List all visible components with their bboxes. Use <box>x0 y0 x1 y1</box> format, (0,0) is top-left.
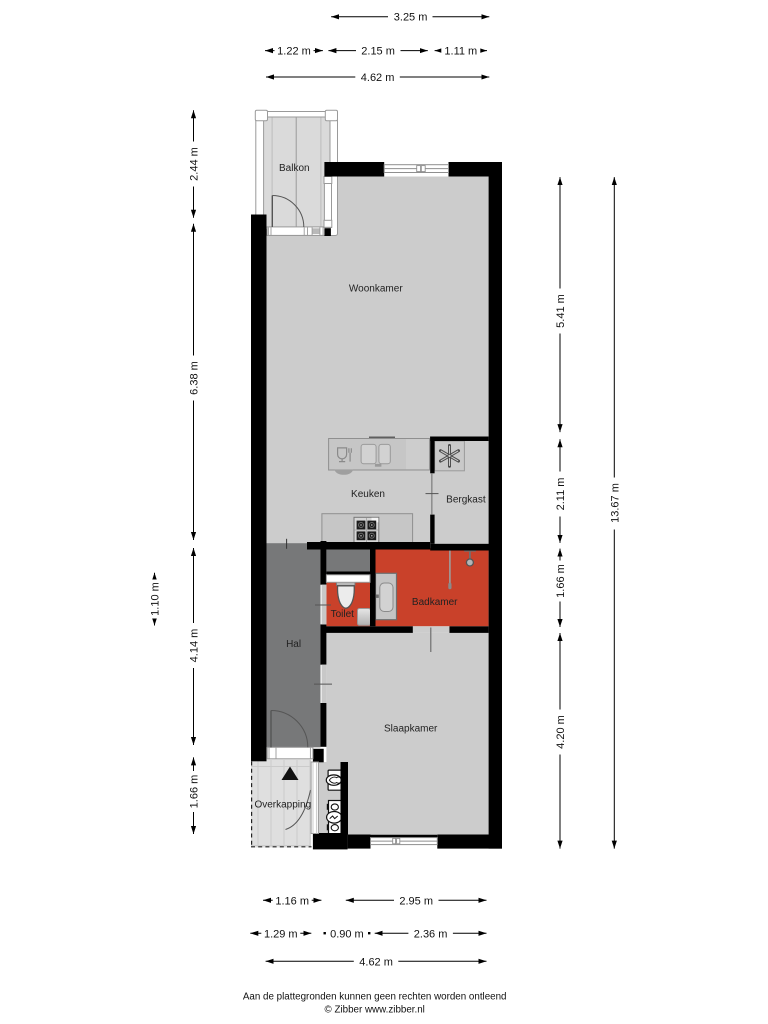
svg-text:13.67 m: 13.67 m <box>609 483 621 523</box>
svg-text:Toilet: Toilet <box>331 609 355 620</box>
svg-text:2.95 m: 2.95 m <box>399 895 433 907</box>
svg-text:Balkon: Balkon <box>279 163 310 174</box>
svg-text:4.20 m: 4.20 m <box>555 715 567 749</box>
svg-text:Bergkast: Bergkast <box>446 494 486 505</box>
svg-text:2.36 m: 2.36 m <box>414 928 448 940</box>
svg-text:Woonkamer: Woonkamer <box>349 284 403 295</box>
svg-text:Slaapkamer: Slaapkamer <box>384 724 438 735</box>
svg-text:1.22 m: 1.22 m <box>277 46 311 58</box>
svg-text:© Zibber www.zibber.nl: © Zibber www.zibber.nl <box>325 1005 425 1016</box>
svg-text:6.38 m: 6.38 m <box>189 361 201 395</box>
svg-text:1.16 m: 1.16 m <box>275 895 309 907</box>
svg-text:1.66 m: 1.66 m <box>189 775 201 809</box>
svg-text:5.41 m: 5.41 m <box>555 294 567 328</box>
svg-text:Badkamer: Badkamer <box>412 597 458 608</box>
svg-text:4.62 m: 4.62 m <box>361 72 395 84</box>
svg-text:2.44 m: 2.44 m <box>189 147 201 181</box>
svg-text:4.14 m: 4.14 m <box>189 629 201 663</box>
svg-text:1.11 m: 1.11 m <box>444 46 477 58</box>
svg-text:1.66 m: 1.66 m <box>555 564 567 598</box>
svg-text:2.15 m: 2.15 m <box>361 46 395 58</box>
svg-text:1.10 m: 1.10 m <box>150 582 162 616</box>
svg-text:Keuken: Keuken <box>351 489 385 500</box>
svg-text:4.62 m: 4.62 m <box>359 956 393 968</box>
svg-text:0.90 m: 0.90 m <box>330 928 364 940</box>
svg-text:Overkapping: Overkapping <box>254 800 311 811</box>
svg-text:1.29 m: 1.29 m <box>264 928 298 940</box>
svg-text:Hal: Hal <box>286 639 301 650</box>
svg-text:2.11 m: 2.11 m <box>555 478 567 511</box>
svg-text:Aan de plattegronden kunnen ge: Aan de plattegronden kunnen geen rechten… <box>243 992 507 1003</box>
svg-text:3.25 m: 3.25 m <box>394 12 428 24</box>
